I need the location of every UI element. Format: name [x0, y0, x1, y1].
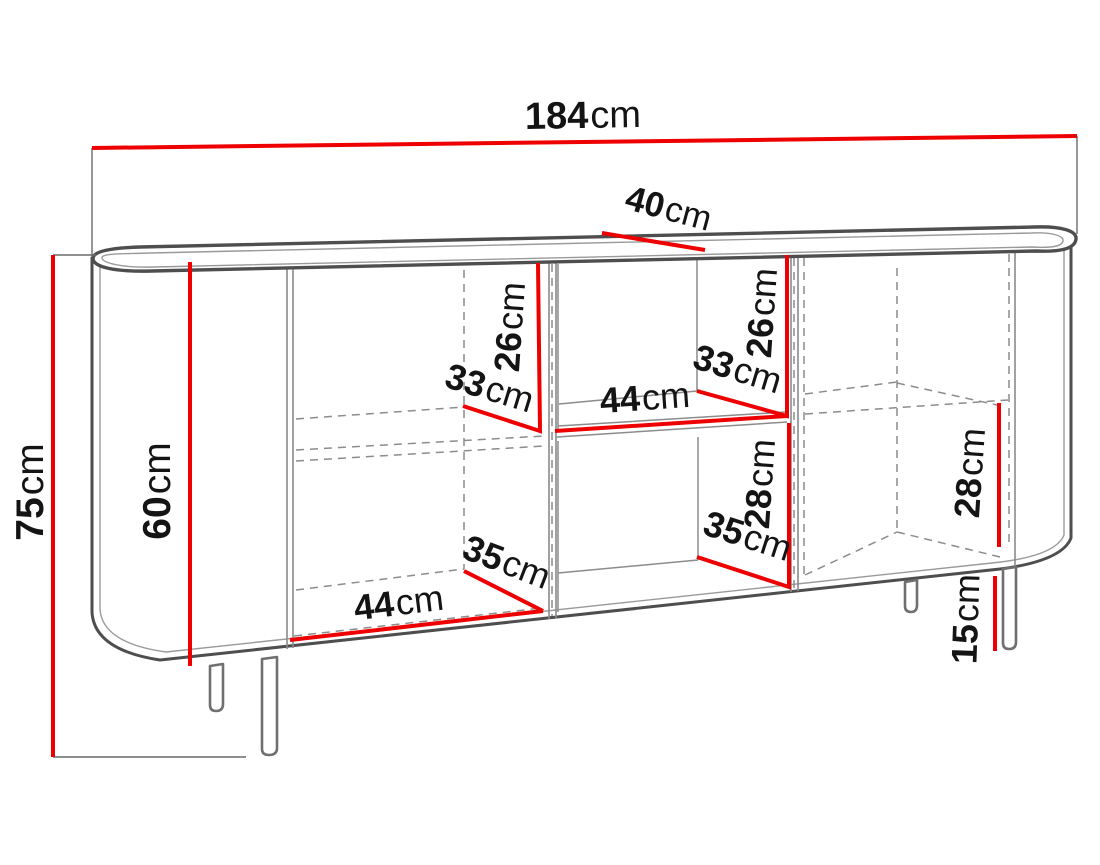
left-shelf-back: [296, 407, 464, 419]
dim-label-height-interior: 60cm: [136, 442, 179, 539]
dim-label-left-bottom-width: 44cm: [351, 576, 445, 628]
left-side-panel: [287, 268, 293, 649]
cabinet-body: [92, 240, 1071, 660]
dim-label-width-total: 184cm: [525, 94, 642, 138]
dim-label-depth-top: 40cm: [621, 179, 716, 239]
left-shelf-front-bottom: [296, 446, 544, 461]
leg-front-left: [262, 657, 277, 755]
leg-back-left: [210, 664, 223, 711]
right-bottom-depth: [897, 532, 1000, 557]
body-outer-edge: [92, 240, 1071, 660]
right-shelf-back: [805, 382, 897, 394]
dim-label-left-bottom-depth: 35cm: [458, 526, 557, 597]
leg-back-right: [905, 580, 917, 612]
right-shelf-depth: [897, 383, 997, 405]
dim-label-height-total: 75cm: [9, 443, 52, 540]
cabinet-legs: [210, 567, 1016, 755]
niche-bottom-back-edge: [558, 560, 698, 573]
dim-label-left-shelf-height: 26cm: [485, 280, 532, 373]
right-shelf-front: [805, 400, 1008, 414]
right-bottom-back: [805, 532, 897, 575]
dim-label-niche-top-height: 26cm: [737, 266, 784, 359]
leg-front-right: [1003, 567, 1016, 649]
furniture-dimension-diagram: 184cm 40cm 75cm 60cm 26cm 33cm 44cm 33cm…: [0, 0, 1100, 865]
dim-label-right-bottom-height: 28cm: [945, 426, 992, 519]
dim-label-leg-height: 15cm: [943, 573, 987, 664]
dim-line-width-total: [92, 136, 1077, 148]
body-inner-edge: [100, 242, 1064, 652]
sideboard-technical-drawing: 184cm 40cm 75cm 60cm 26cm 33cm 44cm 33cm…: [0, 0, 1100, 865]
cabinet-top: [93, 227, 1076, 271]
dim-label-niche-top-width: 44cm: [598, 373, 691, 420]
